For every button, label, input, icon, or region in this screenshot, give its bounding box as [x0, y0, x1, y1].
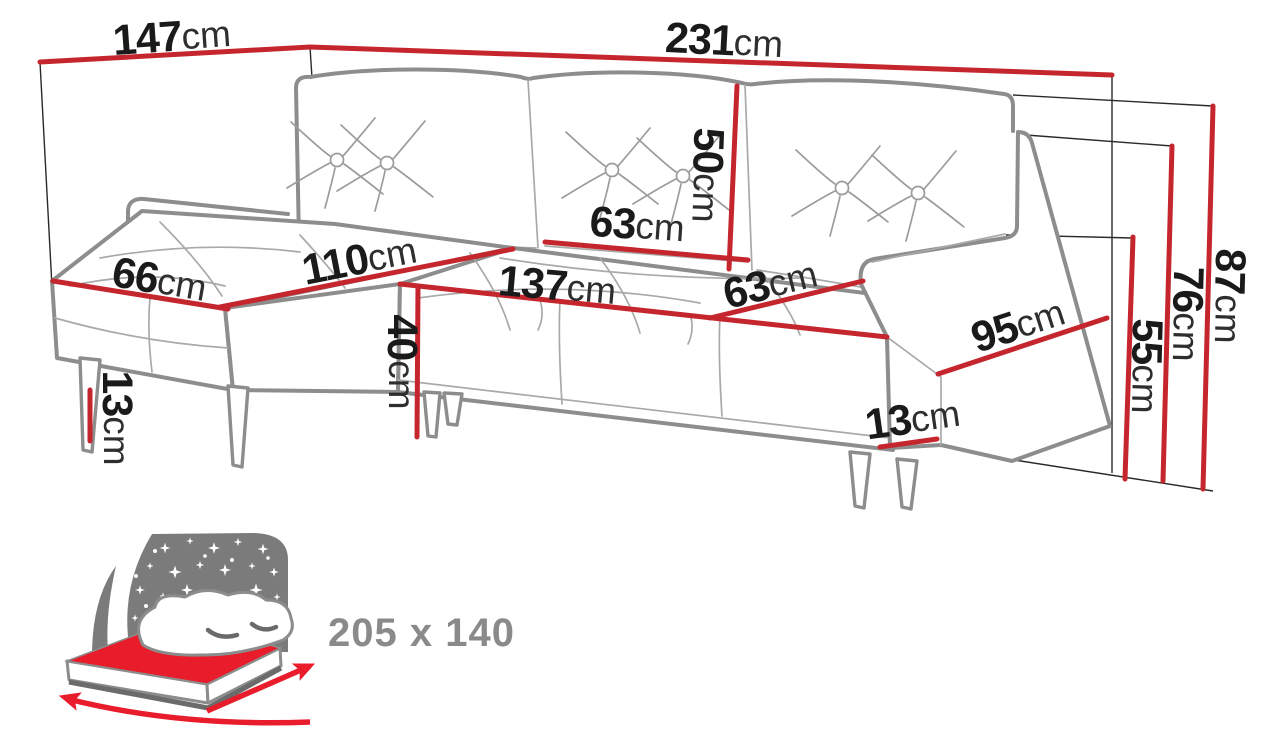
dim-label-55: 55cm: [1120, 318, 1170, 414]
sleeping-function-icon: 205 x 140: [58, 533, 515, 723]
diagram-canvas: 147cm 231cm 50cm 63cm 110cm 66cm 137cm 6…: [0, 0, 1280, 747]
dim-label-87: 87cm: [1203, 248, 1253, 344]
dim-label-76: 76cm: [1161, 266, 1211, 362]
sleeping-size-label: 205 x 140: [328, 611, 515, 655]
dim-label-147: 147cm: [111, 9, 232, 65]
dim-label-13-left: 13cm: [93, 370, 141, 465]
dim-label-231: 231cm: [664, 14, 784, 68]
dim-line-50: [729, 86, 737, 269]
headboard-sliver: [92, 566, 116, 652]
duvet: [139, 590, 293, 655]
dim-label-63-cushion: 63cm: [588, 198, 686, 253]
dim-label-50: 50cm: [681, 127, 732, 224]
sofa-dimension-diagram: 147cm 231cm 50cm 63cm 110cm 66cm 137cm 6…: [0, 0, 1280, 747]
dim-label-40: 40cm: [378, 314, 426, 409]
